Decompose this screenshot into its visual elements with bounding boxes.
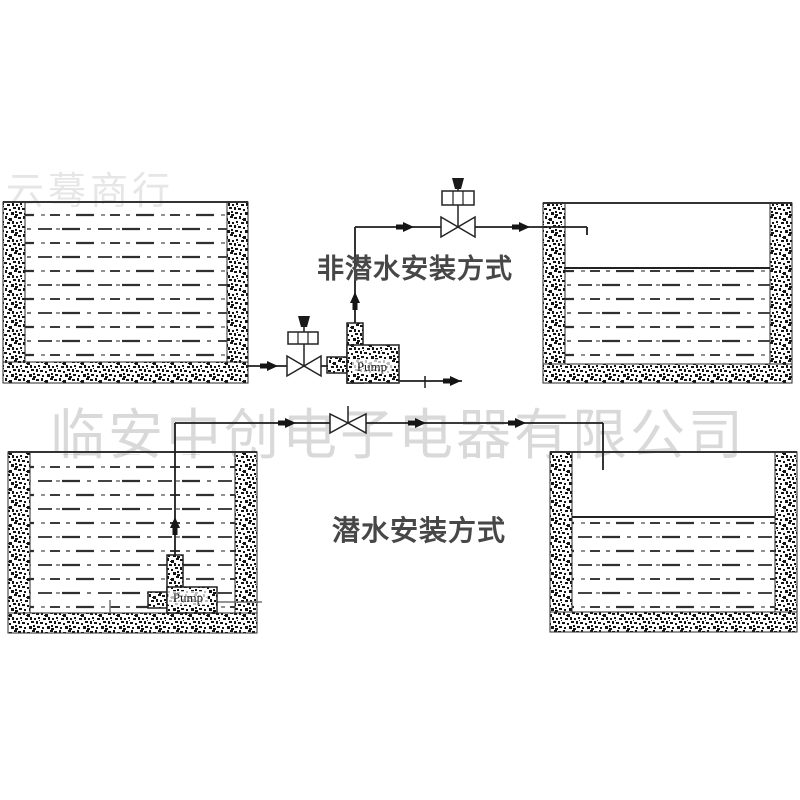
- pump-label: Pump: [357, 359, 387, 374]
- water-icon: [565, 270, 770, 364]
- flow-arrow-icon: [396, 222, 414, 232]
- flow-arrow-icon: [443, 376, 461, 386]
- pump-installation-diagram: 云蓦商行 临安中创电子电器有限公司: [0, 0, 800, 800]
- flow-arrow-icon: [350, 292, 360, 310]
- flow-arrow-icon: [278, 418, 296, 428]
- pump-label: Pump: [173, 590, 203, 605]
- motorized-valve-icon: [287, 316, 321, 376]
- title-non-submersible: 非潜水安装方式: [317, 247, 513, 286]
- tank-top-right: [543, 203, 792, 383]
- title-submersible: 潜水安装方式: [332, 509, 506, 549]
- water-icon: [25, 204, 227, 362]
- flow-arrow-icon: [408, 418, 426, 428]
- pump-icon: Pump: [327, 323, 399, 383]
- flow-arrow-icon: [512, 222, 530, 232]
- diagram-canvas: Pump: [0, 0, 800, 800]
- tank-bottom-left: [8, 452, 257, 633]
- flow-arrow-icon: [260, 361, 278, 371]
- flow-arrow-icon: [508, 418, 526, 428]
- motorized-valve-icon: [441, 178, 475, 237]
- manual-valve-icon: [330, 406, 366, 433]
- tank-top-left: [3, 202, 248, 383]
- water-icon: [572, 519, 775, 611]
- tank-bottom-right: [550, 452, 797, 632]
